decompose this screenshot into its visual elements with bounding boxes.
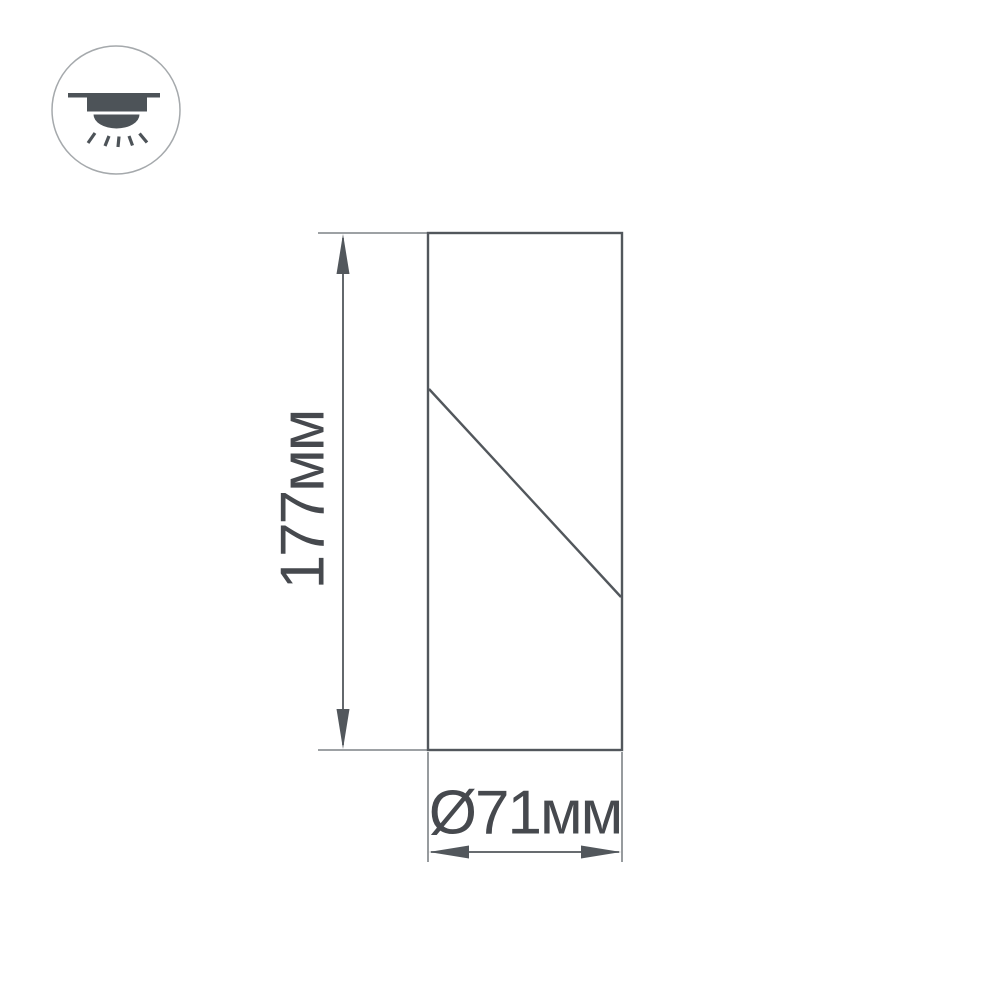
dimension-arrowheads [337, 234, 622, 859]
fixture-outline-group [428, 233, 622, 750]
arrow-down-icon [337, 709, 350, 749]
dimension-lines [343, 238, 619, 852]
fixture-dimension-drawing: 177мм Ø71мм [0, 0, 1000, 1000]
diameter-dimension-label: Ø71мм [429, 779, 621, 848]
arrow-up-icon [337, 234, 350, 274]
diagonal-cut-line [429, 389, 621, 597]
technical-drawing-page: 177мм Ø71мм [0, 0, 1000, 1000]
height-dimension-label: 177мм [268, 411, 337, 590]
